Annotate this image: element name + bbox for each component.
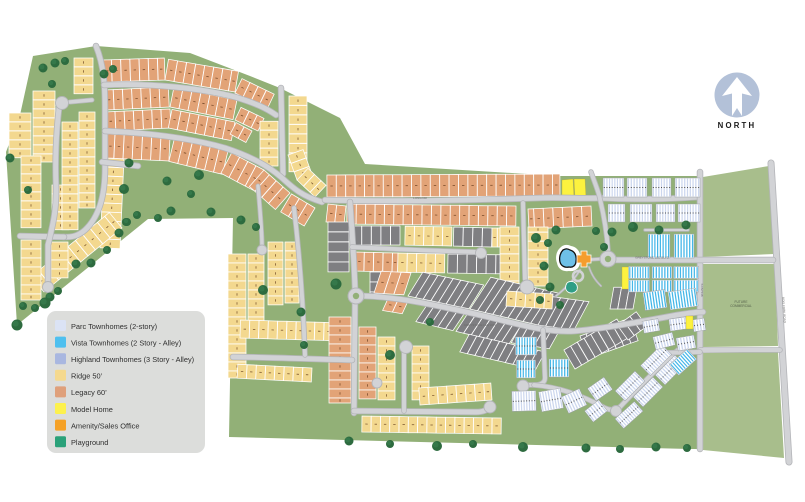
- svg-text:Highland Townhomes (3 Story -: Highland Townhomes (3 Story - Alley): [71, 355, 194, 364]
- svg-text:COMMERCIAL: COMMERCIAL: [730, 304, 752, 308]
- svg-text:Model Home: Model Home: [71, 405, 113, 414]
- svg-text:Ridge 50’: Ridge 50’: [71, 372, 103, 381]
- svg-text:Playground: Playground: [71, 438, 108, 447]
- svg-text:GREYSTONE LEE WAY: GREYSTONE LEE WAY: [464, 323, 497, 327]
- svg-text:Vista Townhomes (2 Story - All: Vista Townhomes (2 Story - Alley): [71, 338, 181, 347]
- svg-text:Parc Townhomes (2-story): Parc Townhomes (2-story): [71, 322, 157, 331]
- svg-text:LONG DR: LONG DR: [413, 196, 428, 200]
- svg-text:S FM 548: S FM 548: [700, 283, 704, 296]
- svg-text:NORTH: NORTH: [718, 121, 757, 130]
- svg-text:Amenity/Sales Office: Amenity/Sales Office: [71, 421, 139, 430]
- svg-text:Legacy 60’: Legacy 60’: [71, 388, 107, 397]
- svg-text:GREYSTONE LEE BLVD: GREYSTONE LEE BLVD: [635, 256, 670, 260]
